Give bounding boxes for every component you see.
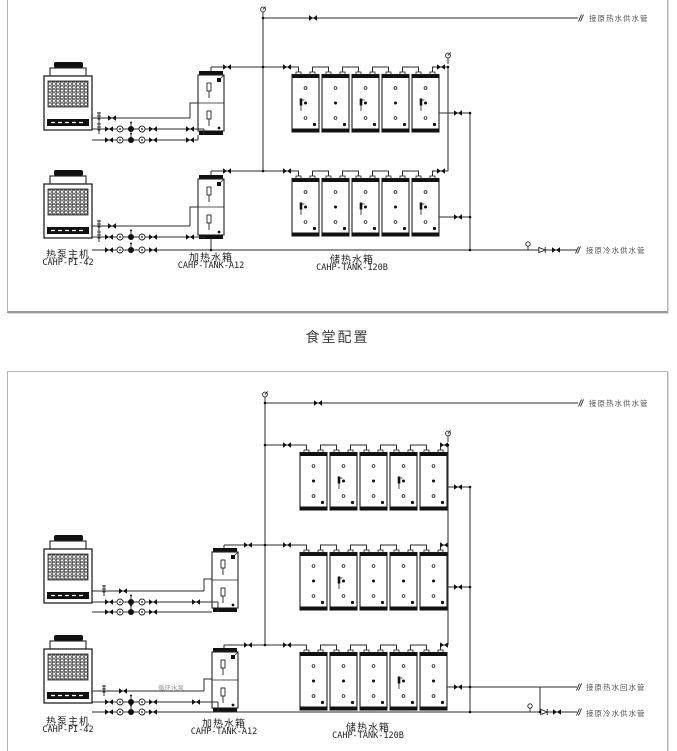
heating-tanks-b (212, 548, 238, 712)
pipe-label-cold-supply-bottom: 接原冷水供水管 (586, 708, 646, 719)
heat-pump-model-bottom: CAHP-PI-42 (3, 725, 133, 735)
pipe-label-hot-return-bottom: 接原热水回水管 (586, 682, 646, 693)
storage-tank-bank (292, 72, 439, 236)
heat-pump-model-top: CAHP-PI-42 (3, 258, 133, 268)
bottom-diagram (44, 392, 584, 716)
storage-tank-model-bottom: CAHP-TANK-120B (303, 731, 433, 741)
heat-pump-units-b (44, 535, 92, 703)
heating-tanks (198, 71, 224, 239)
circulation-pump-label: 循环水泵 (158, 682, 184, 692)
pipe-label-hot-supply-top: 接原热水供水管 (589, 13, 649, 24)
heat-pump-units (44, 62, 92, 238)
storage-tank-model-top: CAHP-TANK-120B (287, 263, 417, 273)
heating-tank-model-bottom: CAHP-TANK-A12 (159, 727, 289, 737)
pipe-label-hot-supply-bottom: 接原热水供水管 (589, 398, 649, 409)
schematic-page: 接原热水供水管 接原冷水供水管 热泵主机 CAHP-PI-42 加热水箱 CAH… (0, 0, 677, 751)
storage-tank-bank-b (300, 450, 447, 710)
top-diagram (44, 7, 584, 254)
piping-diagram-graphics (0, 0, 677, 751)
heating-tank-model-top: CAHP-TANK-A12 (146, 261, 276, 271)
pipe-label-cold-supply-top: 接原冷水供水管 (586, 245, 646, 256)
diagram-caption: 食堂配置 (7, 327, 668, 347)
